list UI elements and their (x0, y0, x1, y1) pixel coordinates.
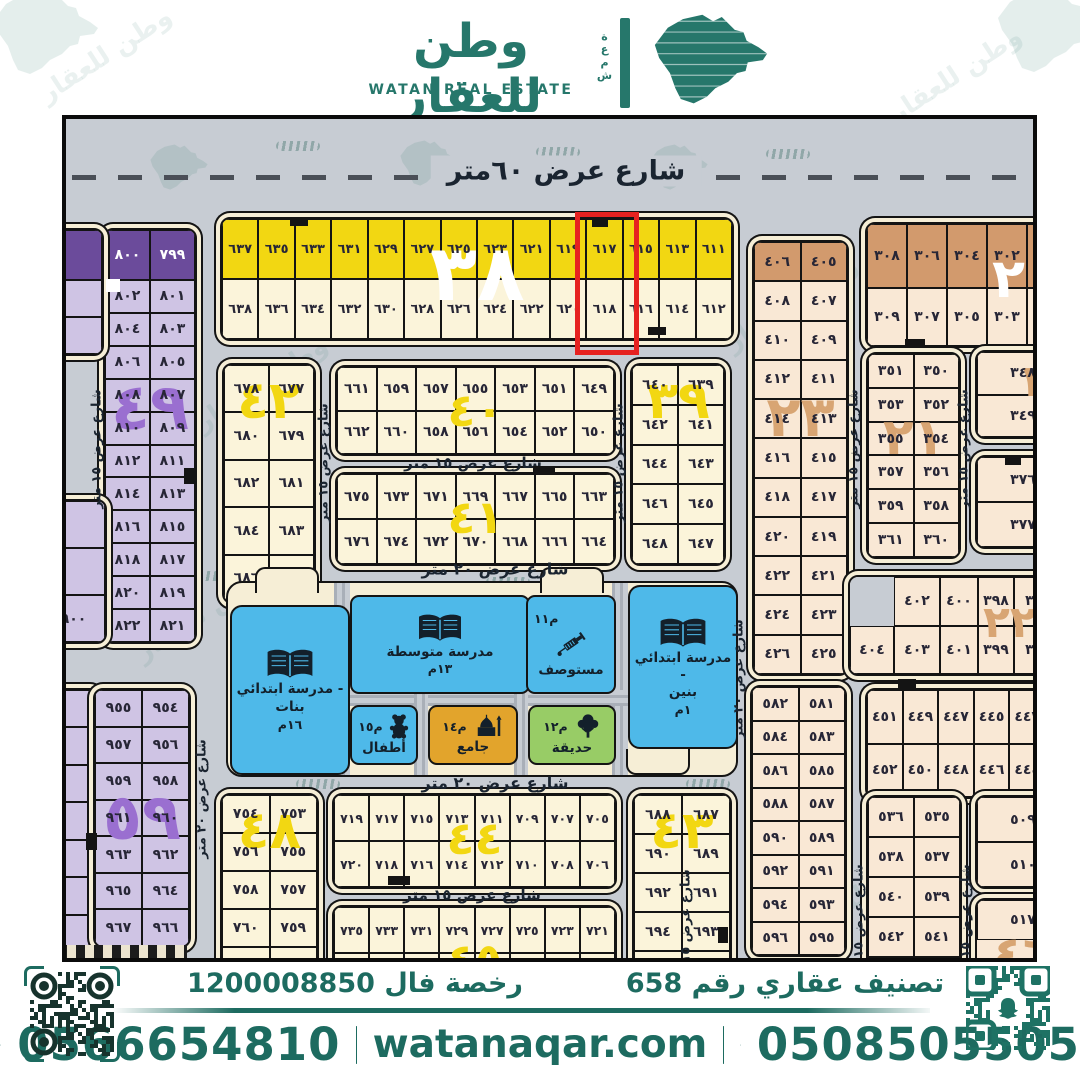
plot-cell: ٧١٥ (404, 795, 439, 841)
plot-cell: ٩٦٤ (142, 873, 189, 910)
plot-cell: ٤٠٦ (754, 242, 801, 281)
plot-cell: ٦٨٢ (224, 460, 269, 507)
plot-cell: ٤١٦ (754, 438, 801, 477)
edge-hatch-strip (62, 945, 187, 958)
plot-cell: ٨٠١ (150, 280, 195, 313)
plot-cell: ٤١٠ (754, 321, 801, 360)
mosque: م١٤ جامع (428, 705, 518, 765)
plot-cell: ٥٩٦ (752, 922, 799, 956)
plot-cell: ٦٣٣ (295, 219, 331, 279)
street-label-15m-vertical: شارع عرض ١٥ متر (90, 389, 105, 508)
plot-cell: ٧٥٥ (270, 833, 318, 871)
plot-cell: ٤١٣ (801, 399, 848, 438)
plot-cell: ٦٩٠ (634, 834, 682, 873)
plot-cell: ٩٦٢ (142, 836, 189, 873)
block-581: ٥٨٢٥٨١٥٨٤٥٨٣٥٨٦٥٨٥٥٨٨٥٨٧٥٩٠٥٨٩٥٩٢٥٩١٥٩٤٥… (750, 685, 847, 957)
book-icon (657, 617, 709, 649)
plot-cell: ٦٦٣ (574, 474, 614, 519)
plot-cell: ٨٢٢ (105, 609, 150, 642)
plot-cell: ٧٣١ (404, 907, 439, 953)
plot-cell: ٧١٧ (369, 795, 404, 841)
plot-cell: ٦٤١ (678, 405, 724, 445)
plot-cell: ٣٠٥ (947, 288, 987, 346)
qr-bracket (24, 1042, 44, 1062)
block-21: ٣٥١٣٥٠٣٥٣٣٥٢٣٥٥٣٥٤٣٥٧٣٥٦٣٥٩٣٥٨٣٦١٣٦٠٢١ (866, 352, 961, 559)
plot-cell: ٦٧٨ (224, 365, 269, 412)
plot-cell (510, 953, 545, 962)
plot-cell: ٩٦١ (95, 800, 142, 837)
plot-cell: ٦٥٨ (416, 411, 456, 455)
plot-cell: ٤٢٢ (754, 556, 801, 595)
plot-cell: ٧٢٠ (334, 841, 369, 887)
plot-cell: ٧٠٥ (580, 795, 615, 841)
website: watanaqar.com (373, 1022, 708, 1067)
plot-cell: ٣٠٤ (947, 224, 987, 288)
plot-cell: ٤٢٥ (801, 635, 848, 674)
qr-code-snapchat (966, 966, 1050, 1050)
plot-cell: ٣٥٧ (868, 455, 914, 489)
plot-cell: ٣٦١ (868, 523, 914, 557)
plot-cell: ٣٧٧ (977, 502, 1037, 547)
plot-cell: ٧٥٨ (222, 871, 270, 909)
street-label-15m: شارع عرض ١٥ متر (404, 454, 542, 472)
plot-cell: ٨١٧ (150, 543, 195, 576)
plot-cell: ٦٢٨ (404, 279, 440, 339)
teddy-bear-icon (388, 713, 410, 739)
block-44: ٧١٩٧١٧٧١٥٧١٣٧١١٧٠٩٧٠٧٧٠٥٧٢٠٧١٨٧١٦٧١٤٧١٢٧… (332, 793, 617, 889)
plot-cell: ٦٤٧ (678, 524, 724, 564)
plot-cell: ٦٤٢ (632, 405, 678, 445)
plot-cell: ٨٠٤ (105, 313, 150, 346)
plot-cell: ٩٥٧ (95, 727, 142, 764)
plot-cell: ٦١٣ (659, 219, 695, 279)
plot-cell: ٣٤٩ (977, 395, 1037, 438)
plot-cell: ٣٠١ (1027, 288, 1037, 346)
plot-cell: ٧٠٦ (580, 841, 615, 887)
plot-cell: ٦٧٤ (377, 519, 417, 564)
block-39: ٦٤٠٦٣٩٦٤٢٦٤١٦٤٤٦٤٣٦٤٦٦٤٥٦٤٨٦٤٧٣٩ (630, 363, 726, 566)
plot-cell: ٣٥٩ (868, 489, 914, 523)
street-label-60m: شارع عرض ٦٠متر (431, 156, 702, 187)
plot-cell: ٥٨٣ (799, 721, 846, 755)
plot-cell: ٣٤٨ (977, 352, 1037, 395)
block-41: ٦٧٥٦٧٣٦٧١٦٦٩٦٦٧٦٦٥٦٦٣٦٧٦٦٧٤٦٧٢٦٧٠٦٦٨٦٦٦٦… (335, 472, 616, 566)
plot-cell: ٦٢١ (513, 219, 549, 279)
plot-cell: ٦٣٩ (678, 365, 724, 405)
plot-cell: ٧٢٣ (545, 907, 580, 953)
block-40: ٦٦١٦٥٩٦٥٧٦٥٥٦٥٣٦٥١٦٤٩٦٦٢٦٦٠٦٥٨٦٥٦٦٥٤٦٥٢٦… (335, 365, 616, 456)
plot-cell: ٦٣٢ (331, 279, 367, 339)
plot-cell: ٦٩٤ (634, 912, 682, 951)
plot-cell (439, 953, 474, 962)
plot-cell: ٦٥٠ (574, 411, 614, 455)
plot-cell: ٥٩١ (799, 855, 846, 889)
plot-cell: ٦٥٦ (456, 411, 496, 455)
plot-cell: ٩٦٠ (142, 800, 189, 837)
plot-cell: ٧١٣ (439, 795, 474, 841)
plot-cell: ٤٠٤ (850, 626, 894, 675)
kindergarten: م١٥ أطفال (350, 705, 418, 765)
plot-cell: ٥٤٢ (868, 917, 914, 957)
plot-cell: ٩٦٥ (95, 873, 142, 910)
plot-cell: ٥١٠ (977, 842, 1037, 887)
plot-cell: ٥١٧ (977, 900, 1037, 940)
brand-name-english: WATAN REAL ESTATE (340, 82, 602, 98)
plot-cell: ٤٠٢ (894, 577, 940, 626)
street-label-15m-vertical: شارع عرض ١٥ متر (959, 864, 974, 962)
street-label-15m: شارع عرض ١٥ متر (403, 886, 541, 904)
platform-bracket (255, 567, 319, 593)
plot-cell: ٦٥١ (535, 367, 575, 411)
plot-cell: ٥٩٢ (752, 855, 799, 889)
boys-school: مدرسة ابتدائي - بنين ١م (628, 585, 738, 749)
plot-cell: ٦٧٧ (269, 365, 314, 412)
plot-cell: ٣٠٩ (867, 288, 907, 346)
plot-cell (545, 953, 580, 962)
highlight-box (575, 212, 639, 355)
plot-cell: ٦٦٤ (574, 519, 614, 564)
block-22: ٤٠٢٤٠٠٣٩٨٣٩٦٤٠٤٤٠٣٤٠١٣٩٩٣٩٧٢٢ (848, 575, 1037, 676)
street-label-20m-vertical: شارع عرض ٢٠ متر (195, 739, 210, 858)
plot-cell: ٧٠٨ (545, 841, 580, 887)
plot-cell: ٦٤٤ (632, 445, 678, 485)
block-517: ٥١٧٤٦ (975, 898, 1037, 962)
brand-side-text: شمعة (598, 30, 611, 110)
plot-cell: ٤٤٩ (903, 690, 939, 744)
plot-cell: ٣٩٧ (1014, 626, 1037, 675)
plot-cell: ٣٥٨ (914, 489, 960, 523)
plot-cell: ٤٢٤ (754, 595, 801, 634)
plot-cell: ٦٦٥ (535, 474, 575, 519)
plot-cell: ٩٦٣ (95, 836, 142, 873)
street-label-20m: شارع عرض ٢٠ متر (422, 774, 569, 793)
plot-cell: ٧٥٣ (270, 795, 318, 833)
plot-cell: ٤٥٢ (867, 744, 903, 798)
plot-cell: ٣٠٠ (1027, 224, 1037, 288)
plot-marker (533, 466, 555, 475)
plot-cell: ٣٥٦ (914, 455, 960, 489)
plot-cell: ٦٢٧ (404, 219, 440, 279)
book-icon (414, 613, 466, 643)
plot-cell: ٦٤٨ (632, 524, 678, 564)
plot-cell: ٥٤١ (914, 917, 960, 957)
book-icon (264, 648, 316, 680)
plot-cell: ٧٠٧ (545, 795, 580, 841)
plot-cell: ٤٥٠ (903, 744, 939, 798)
plot-cell: ٦٢٢ (513, 279, 549, 339)
plot-cell: ٥٨٤ (752, 721, 799, 755)
plot-cell: ٧١٤ (439, 841, 474, 887)
plot-cell: ٤٠٨ (754, 281, 801, 320)
plot-cell: ٥٩٠ (752, 821, 799, 855)
brand-name-arabic: وطن للعقار (340, 14, 602, 124)
plot-cell: ٩٥٩ (95, 763, 142, 800)
street-label-15m-vertical: شارع عرض ١٥ متر (957, 389, 972, 508)
plot-cell: ٤١٨ (754, 478, 801, 517)
plot-marker (905, 339, 925, 348)
plot-cell: ٣٩٦ (1014, 577, 1037, 626)
plot-cell: ٧١٩ (334, 795, 369, 841)
plot-cell (62, 280, 102, 317)
plot-cell: ٦٤٥ (678, 484, 724, 524)
plot-cell: ٥٨٥ (799, 754, 846, 788)
fal-license: رخصة فال 1200008850 (120, 968, 590, 999)
plot-cell (404, 953, 439, 962)
plot-cell: ٣٥١ (868, 354, 914, 388)
plot-cell: ٦٧٠ (456, 519, 496, 564)
plot-cell: ٦١١ (696, 219, 732, 279)
block-59: ٩٥٥٩٥٤٩٥٧٩٥٦٩٥٩٩٥٨٩٦١٩٦٠٩٦٣٩٦٢٩٦٥٩٦٤٩٦٧٩… (93, 688, 191, 948)
street-hatch (276, 141, 320, 151)
plot-marker (1005, 456, 1021, 465)
plot-cell: ٦٤٦ (632, 484, 678, 524)
qr-bracket (24, 966, 44, 986)
plot-cell: ٥٣٨ (868, 837, 914, 877)
street-label-20m-vertical: شارع عرض ٢٠ متر (732, 619, 747, 738)
brand-divider-bar (620, 18, 630, 108)
block-19: ٣٤٨٣٤٩١٩ (975, 350, 1037, 439)
plot-cell: ٣٠٦ (907, 224, 947, 288)
plot-cell: ٨٢٠ (105, 576, 150, 609)
street-hatch (296, 779, 340, 789)
plot-cell: ٨٠٣ (150, 313, 195, 346)
plot-cell: ٩٠٠ (62, 595, 105, 642)
plot-cell: ٦٦٩ (456, 474, 496, 519)
plot-cell: ٨٠٨ (105, 379, 150, 412)
plot-cell: ٧١١ (475, 795, 510, 841)
plot-cell: ٧٩٩ (150, 230, 195, 280)
plot-cell: ٦٥٧ (416, 367, 456, 411)
plot-cell: ٦٣٠ (368, 279, 404, 339)
plot-cell: ٨١٠ (105, 412, 150, 445)
plot-cell: ٦٤٩ (574, 367, 614, 411)
plot-cell: ٥٩٤ (752, 888, 799, 922)
services-platform: مدرسة ابتدائي - بنات ١٦م مدرسة متوسطة ١٣… (226, 581, 738, 777)
plot-cell: ٣٠٢ (987, 224, 1027, 288)
plot-cell: ٩٦٧ (95, 909, 142, 946)
plot-cell: ٦٨٧ (682, 795, 730, 834)
plot-cell: ٧٥٦ (222, 833, 270, 871)
plot-marker (184, 468, 195, 484)
plot-cell (475, 953, 510, 962)
plot-cell: ٤٤٥ (974, 690, 1010, 744)
syringe-icon (551, 627, 591, 661)
plot-cell: ٨١٨ (105, 543, 150, 576)
plot-cell: ٦٢٩ (368, 219, 404, 279)
plot-cell: ٣٥٣ (868, 388, 914, 422)
plot-cell: ٤٠٧ (801, 281, 848, 320)
block-45: ٧٣٥٧٣٣٧٣١٧٢٩٧٢٧٧٢٥٧٢٣٧٢١٤٥ (332, 905, 617, 962)
tree-icon (575, 713, 601, 739)
plot-marker (898, 679, 916, 689)
qr-code-left (30, 972, 114, 1056)
plot-cell: ٨١٩ (150, 576, 195, 609)
plot-cell: ٤٠٥ (801, 242, 848, 281)
plot-cell: ٨٠٧ (150, 379, 195, 412)
plot-cell: ٥٣٧ (914, 837, 960, 877)
mosque-icon (474, 714, 504, 738)
plot-cell: ٤٠٣ (894, 626, 940, 675)
watermark-map-icon (146, 139, 212, 194)
plot-cell: ٨١٦ (105, 510, 150, 543)
clinic: م١١ مستوصف (526, 595, 616, 694)
plot-cell: ٦٧٩ (269, 412, 314, 459)
block-38: ٦٣٧٦٣٥٦٣٣٦٣١٦٢٩٦٢٧٦٢٥٦٢٣٦٢١٦١٩٦١٧٦١٥٦١٣٦… (220, 217, 734, 341)
plot-cell: ٤١٤ (754, 399, 801, 438)
plot-marker (86, 833, 97, 850)
plot-marker-white (106, 279, 120, 292)
plot-cell: ٦٣٧ (222, 219, 258, 279)
plot-cell: ٤٠٠ (940, 577, 978, 626)
plot-cell: ٦٤٠ (632, 365, 678, 405)
plot-cell: ٦٢٥ (441, 219, 477, 279)
plot-cell: ٨٠٦ (105, 346, 150, 379)
plot-cell (62, 230, 102, 280)
plot-cell: ٦٦١ (337, 367, 377, 411)
plot-cell: ٤١٢ (754, 360, 801, 399)
plot-cell: ٩٥٨ (142, 763, 189, 800)
street-label-20m: شارع عرض ٢٠ متر (422, 560, 569, 579)
street-label-15m-vertical: شارع عرض ١٥ متر (612, 403, 627, 522)
plot-cell: ٩٦٦ (142, 909, 189, 946)
plot-cell: ٧٣٣ (369, 907, 404, 953)
plot-cell: ٧٠٩ (510, 795, 545, 841)
plot-cell: ٣٥٠ (914, 354, 960, 388)
plot-cell: ٥٨٢ (752, 687, 799, 721)
street-hatch (766, 149, 810, 159)
plot-cell: ٥٠٩ (977, 797, 1037, 842)
plot-cell: ٦٥٥ (456, 367, 496, 411)
block-20: ٣٠٨٣٠٦٣٠٤٣٠٢٣٠٠٣٠٩٣٠٧٣٠٥٣٠٣٣٠١٢٠ (865, 222, 1037, 348)
block-535: ٥٣٦٥٣٥٥٣٨٥٣٧٥٤٠٥٣٩٥٤٢٥٤١٥٤٤٥٤٣ (866, 795, 962, 962)
plot-cell: ٥٨١ (799, 687, 846, 721)
plot-cell: ٦٣٥ (258, 219, 294, 279)
plot-cell: ٧٥٤ (222, 795, 270, 833)
plot-cell (334, 953, 369, 962)
plot-cell: ٤٠٩ (801, 321, 848, 360)
plot-cell: ٣٥٥ (868, 422, 914, 456)
saudi-map-logo-icon (645, 4, 777, 112)
plot-cell: ٤٤٨ (938, 744, 974, 798)
watermark-text: وطن للعقار (884, 21, 1027, 129)
plot-cell: ٥٨٧ (799, 788, 846, 822)
watermark-map-icon (990, 0, 1080, 80)
plot-cell: ٩٥٥ (95, 690, 142, 727)
plot-cell: ٧٢١ (580, 907, 615, 953)
street-label-15m-vertical: شارع عرض ١٥ متر (847, 389, 862, 508)
plot-cell: ٦٧٥ (337, 474, 377, 519)
plot-cell: ٩٥٦ (142, 727, 189, 764)
plot-cell: ٤٢١ (801, 556, 848, 595)
plot-cell: ٤٢٣ (801, 595, 848, 634)
plot-cell: ٦٨٤ (224, 507, 269, 554)
plot-cell: ٥٨٩ (799, 821, 846, 855)
qr-bracket (100, 966, 120, 986)
plot-cell: ٤٤٦ (974, 744, 1010, 798)
plot-cell (222, 947, 270, 962)
plot-cell: ٦٥٢ (535, 411, 575, 455)
footer-divider-line (112, 1008, 930, 1013)
plot-cell: ٦٨١ (269, 460, 314, 507)
plot-cell: ٦٧٣ (377, 474, 417, 519)
plot-cell: ٥٤٠ (868, 877, 914, 917)
plot-cell: ٦١٢ (696, 279, 732, 339)
plot-cell: ٣٥٢ (914, 388, 960, 422)
plot-cell: ٧٥٩ (270, 909, 318, 947)
plot-cell: ٩٥٤ (142, 690, 189, 727)
plot-cell: ٦٢٦ (441, 279, 477, 339)
plot-cell (62, 548, 105, 595)
plot-cell: ٣٩٩ (978, 626, 1014, 675)
plot-cell: ٦٨٨ (634, 795, 682, 834)
qr-bracket (100, 1042, 120, 1062)
plot-cell: ٦٩٢ (634, 873, 682, 912)
plot-cell: ٤١٧ (801, 478, 848, 517)
plot-cell: ٥٨٨ (752, 788, 799, 822)
plot-cell: ٤١٩ (801, 517, 848, 556)
plot-cell: ٦٣١ (331, 219, 367, 279)
plot-cell: ٣٥٤ (914, 422, 960, 456)
plot-cell: ٤٢٦ (754, 635, 801, 674)
platform-bracket (626, 749, 690, 775)
plot-cell (634, 951, 682, 962)
plot-marker (648, 327, 666, 335)
plot-cell: ٣٠٧ (907, 288, 947, 346)
block-48: ٧٥٤٧٥٣٧٥٦٧٥٥٧٥٨٧٥٧٧٦٠٧٥٩٤٨ (220, 793, 319, 962)
plot-cell: ٤١٥ (801, 438, 848, 477)
plot-cell: ٦٥٤ (495, 411, 535, 455)
block-509: ٥٠٩٥١٠ (975, 795, 1037, 889)
block-23: ٤٠٦٤٠٥٤٠٨٤٠٧٤١٠٤٠٩٤١٢٤١١٤١٤٤١٣٤١٦٤١٥٤١٨٤… (752, 240, 849, 676)
classification-number: تصنيف عقاري رقم 658 (600, 968, 970, 999)
plot-marker (290, 218, 308, 226)
plot-cell: ٧٣٥ (334, 907, 369, 953)
plot-cell: ٧٢٥ (510, 907, 545, 953)
whatsapp-icon (740, 1023, 741, 1067)
plot-cell: ٨٠٠ (105, 230, 150, 280)
plot-cell: ٧٥٧ (270, 871, 318, 909)
block-edge-left-top (62, 228, 104, 356)
plot-cell: ٥٨٦ (752, 754, 799, 788)
plot-cell: ٥٩٥ (799, 922, 846, 956)
plot-cell: ٦٥٣ (495, 367, 535, 411)
plot-cell: ٨٠٥ (150, 346, 195, 379)
plot-cell: ٦٣٨ (222, 279, 258, 339)
plot-cell: ٦٤٣ (678, 445, 724, 485)
street-label-15m-vertical: شارع عرض ١٥ متر (679, 869, 694, 962)
watermark-map-icon (0, 0, 106, 82)
plot-cell: ٥٣٥ (914, 797, 960, 837)
plot-cell: ٤٥١ (867, 690, 903, 744)
plot-cell: ٦٦٨ (495, 519, 535, 564)
watermark-text: وطن للعقار (34, 1, 177, 109)
plot-cell: ٧١٠ (510, 841, 545, 887)
plot-cell: ٦٢٤ (477, 279, 513, 339)
plot-cell: ٨٢١ (150, 609, 195, 642)
plot-cell: ٥٣٦ (868, 797, 914, 837)
plot-cell: ٦٦٦ (535, 519, 575, 564)
plot-marker (388, 876, 410, 885)
plot-cell: ٨١٥ (150, 510, 195, 543)
plot-cell: ٣٠٨ (867, 224, 907, 288)
plot-cell: ٣٠٣ (987, 288, 1027, 346)
plot-marker (718, 927, 728, 943)
whatsapp-icon (0, 1023, 1, 1067)
plot-cell: ٧٦٠ (222, 909, 270, 947)
block-edge-left-mid: ٩٠٠ (62, 499, 107, 644)
plot-cell: ٦٢٣ (477, 219, 513, 279)
plot-cell: ٦٣٦ (258, 279, 294, 339)
